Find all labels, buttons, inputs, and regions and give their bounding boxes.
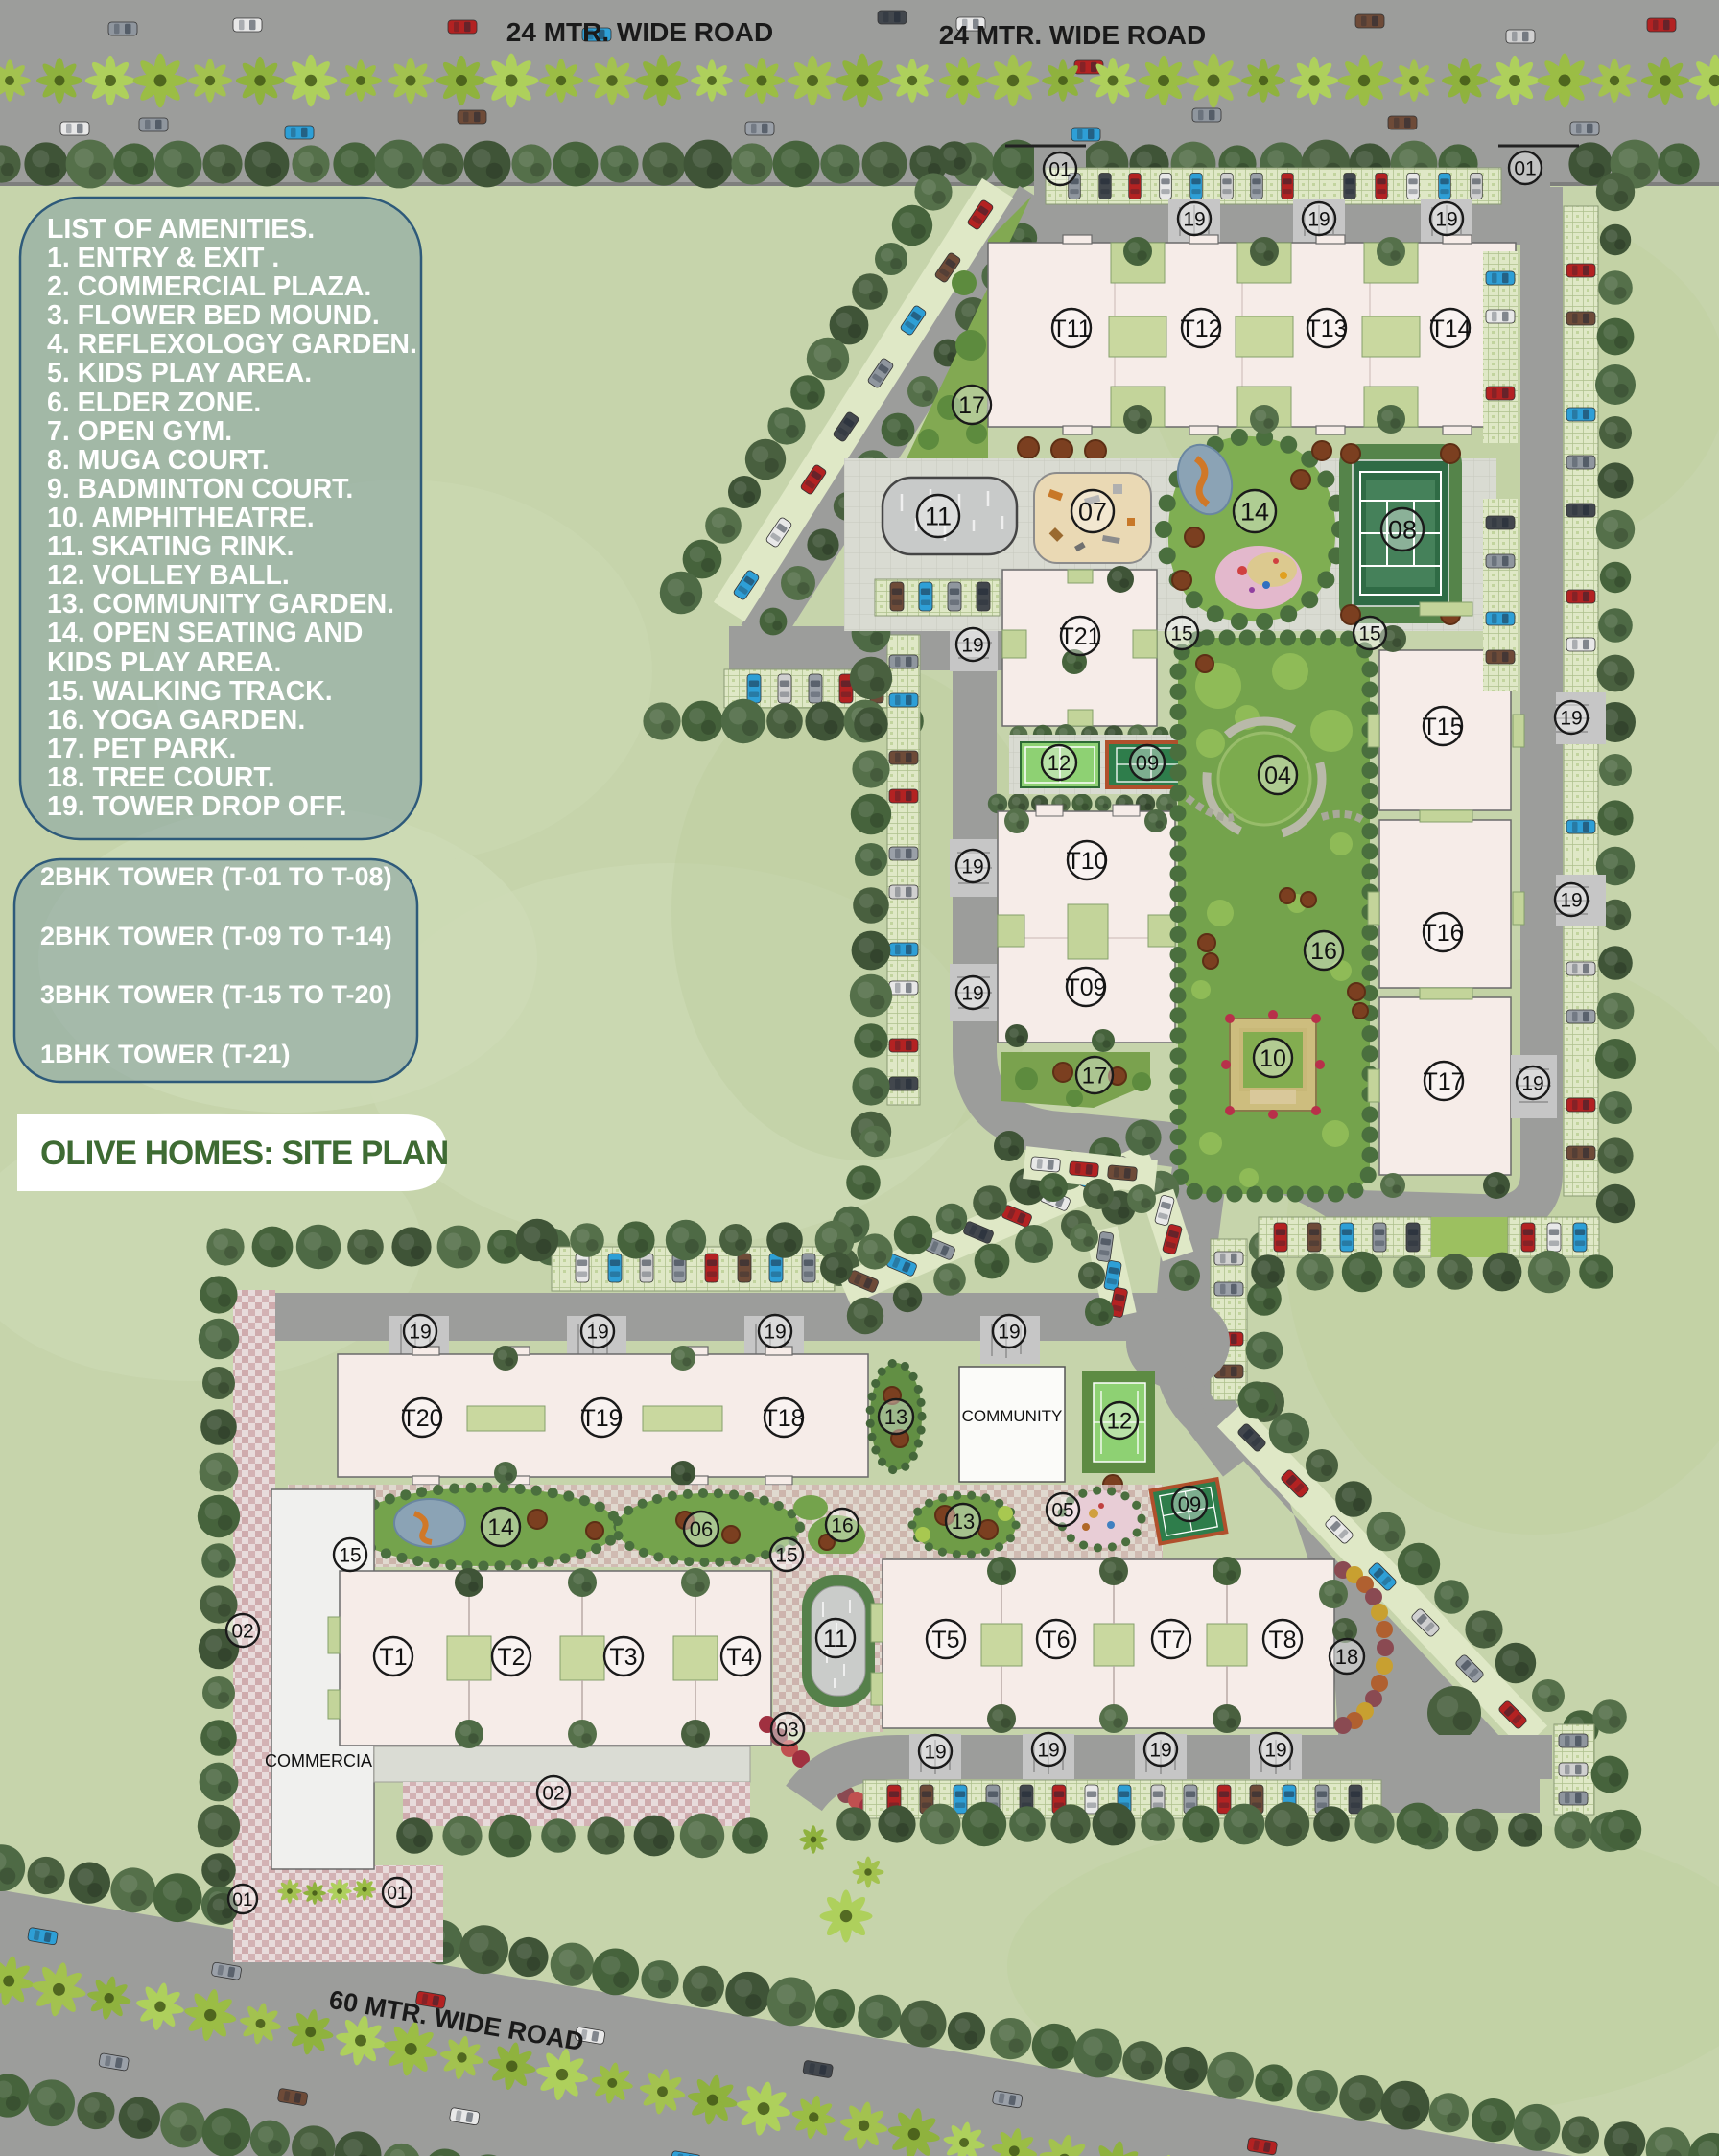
svg-text:2BHK TOWER (T-01 TO T-08): 2BHK TOWER (T-01 TO T-08) [40,862,392,891]
svg-text:T10: T10 [1066,848,1107,875]
svg-text:12: 12 [1107,1409,1133,1435]
svg-text:T14: T14 [1429,316,1471,342]
svg-text:13. COMMUNITY GARDEN.: 13. COMMUNITY GARDEN. [47,589,394,620]
svg-text:19. TOWER DROP OFF.: 19. TOWER DROP OFF. [47,791,347,822]
svg-text:19: 19 [1264,1740,1286,1762]
svg-text:T15: T15 [1422,714,1463,740]
svg-text:03: 03 [776,1720,798,1742]
svg-text:LIST OF AMENITIES.: LIST OF AMENITIES. [47,214,315,245]
svg-text:T7: T7 [1157,1627,1185,1653]
svg-text:16: 16 [1310,938,1337,965]
svg-text:17: 17 [958,392,985,419]
svg-text:T1: T1 [379,1644,407,1671]
svg-text:19: 19 [961,635,983,657]
svg-text:24 MTR. WIDE ROAD: 24 MTR. WIDE ROAD [939,20,1206,50]
svg-text:13: 13 [884,1405,907,1429]
svg-text:01: 01 [232,1890,252,1910]
svg-text:5. KIDS PLAY AREA.: 5. KIDS PLAY AREA. [47,358,312,388]
svg-text:12: 12 [1048,751,1071,775]
svg-text:19: 19 [1037,1740,1059,1762]
svg-text:T12: T12 [1180,316,1221,342]
svg-text:T18: T18 [763,1405,804,1432]
svg-text:T13: T13 [1306,316,1347,342]
svg-text:8. MUGA COURT.: 8. MUGA COURT. [47,445,270,476]
svg-text:19: 19 [586,1322,608,1344]
svg-text:T8: T8 [1268,1627,1296,1653]
svg-text:T6: T6 [1042,1627,1070,1653]
svg-text:19: 19 [1521,1073,1543,1095]
svg-text:6. ELDER ZONE.: 6. ELDER ZONE. [47,387,261,418]
svg-text:16: 16 [831,1515,853,1537]
svg-text:14: 14 [487,1514,514,1541]
svg-text:19: 19 [1435,209,1457,231]
svg-text:01: 01 [387,1884,407,1904]
svg-text:19: 19 [409,1322,431,1344]
svg-text:T5: T5 [931,1627,959,1653]
svg-text:1. ENTRY & EXIT .: 1. ENTRY & EXIT . [47,243,279,273]
svg-text:T21: T21 [1059,623,1100,650]
svg-text:10. AMPHITHEATRE.: 10. AMPHITHEATRE. [47,503,315,533]
svg-text:08: 08 [1388,516,1417,545]
svg-text:T20: T20 [401,1405,442,1432]
svg-text:02: 02 [231,1621,253,1643]
svg-text:15. WALKING TRACK.: 15. WALKING TRACK. [47,676,333,707]
svg-text:3. FLOWER BED MOUND.: 3. FLOWER BED MOUND. [47,300,380,331]
svg-text:T2: T2 [497,1644,525,1671]
svg-text:11. SKATING RINK.: 11. SKATING RINK. [47,531,294,562]
svg-text:19: 19 [1560,708,1582,730]
svg-text:3BHK TOWER (T-15 TO T-20): 3BHK TOWER (T-15 TO T-20) [40,980,392,1009]
svg-text:04: 04 [1264,762,1291,789]
svg-text:OLIVE HOMES: SITE PLAN: OLIVE HOMES: SITE PLAN [40,1135,448,1172]
svg-text:01: 01 [1048,159,1071,181]
svg-text:KIDS PLAY AREA.: KIDS PLAY AREA. [47,647,281,678]
svg-text:24 MTR. WIDE ROAD: 24 MTR. WIDE ROAD [506,17,773,47]
svg-text:11: 11 [925,503,952,531]
svg-text:15: 15 [775,1545,797,1567]
svg-text:T4: T4 [726,1644,754,1671]
svg-text:10: 10 [1260,1045,1286,1072]
svg-text:19: 19 [961,983,983,1005]
svg-text:19: 19 [764,1322,786,1344]
svg-text:19: 19 [961,856,983,879]
svg-text:15: 15 [339,1545,361,1567]
svg-text:2BHK TOWER (T-09 TO T-14): 2BHK TOWER (T-09 TO T-14) [40,922,392,950]
svg-text:9. BADMINTON COURT.: 9. BADMINTON COURT. [47,474,353,504]
svg-text:13: 13 [952,1510,975,1534]
svg-text:16. YOGA GARDEN.: 16. YOGA GARDEN. [47,705,305,736]
svg-text:19: 19 [1183,209,1205,231]
svg-text:12. VOLLEY BALL.: 12. VOLLEY BALL. [47,560,290,591]
svg-text:T19: T19 [580,1405,622,1432]
svg-text:01: 01 [1514,158,1536,180]
svg-text:19: 19 [1307,209,1330,231]
svg-text:15: 15 [1358,623,1380,645]
svg-text:7. OPEN GYM.: 7. OPEN GYM. [47,416,232,447]
svg-text:05: 05 [1051,1500,1073,1522]
svg-text:COMMERCIAL: COMMERCIAL [265,1751,382,1770]
svg-text:07: 07 [1078,498,1107,527]
svg-text:4. REFLEXOLOGY GARDEN.: 4. REFLEXOLOGY GARDEN. [47,329,417,360]
svg-text:14: 14 [1240,498,1269,527]
svg-text:19: 19 [924,1742,946,1764]
svg-text:02: 02 [542,1783,564,1805]
svg-text:06: 06 [690,1517,713,1541]
svg-text:T3: T3 [609,1644,637,1671]
svg-text:11: 11 [823,1626,848,1652]
svg-text:T16: T16 [1422,920,1463,947]
svg-text:18. TREE COURT.: 18. TREE COURT. [47,762,275,793]
svg-text:19: 19 [1149,1740,1171,1762]
svg-text:17. PET PARK.: 17. PET PARK. [47,734,236,764]
svg-text:19: 19 [998,1322,1020,1344]
svg-text:T11: T11 [1051,316,1091,342]
svg-text:COMMUNITY: COMMUNITY [962,1407,1063,1425]
svg-text:1BHK TOWER (T-21): 1BHK TOWER (T-21) [40,1040,291,1068]
svg-text:15: 15 [1170,623,1192,645]
svg-text:09: 09 [1136,751,1159,775]
svg-text:2. COMMERCIAL PLAZA.: 2. COMMERCIAL PLAZA. [47,271,371,302]
svg-text:17: 17 [1082,1064,1108,1090]
svg-text:T17: T17 [1423,1068,1464,1095]
svg-text:18: 18 [1335,1645,1358,1669]
svg-text:09: 09 [1178,1492,1201,1516]
svg-text:T09: T09 [1065,974,1106,1001]
svg-text:14. OPEN SEATING AND: 14. OPEN SEATING AND [47,618,363,648]
svg-text:19: 19 [1560,890,1582,912]
